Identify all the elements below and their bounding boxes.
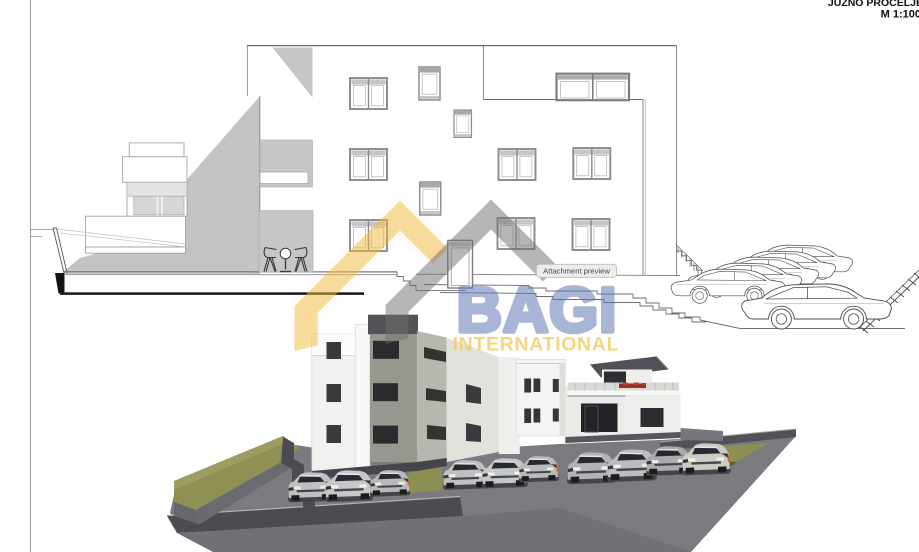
svg-text:INTERNATIONAL: INTERNATIONAL	[453, 334, 619, 356]
svg-text:M 1:100: M 1:100	[881, 8, 919, 20]
svg-text:Attachment preview: Attachment preview	[543, 266, 610, 275]
